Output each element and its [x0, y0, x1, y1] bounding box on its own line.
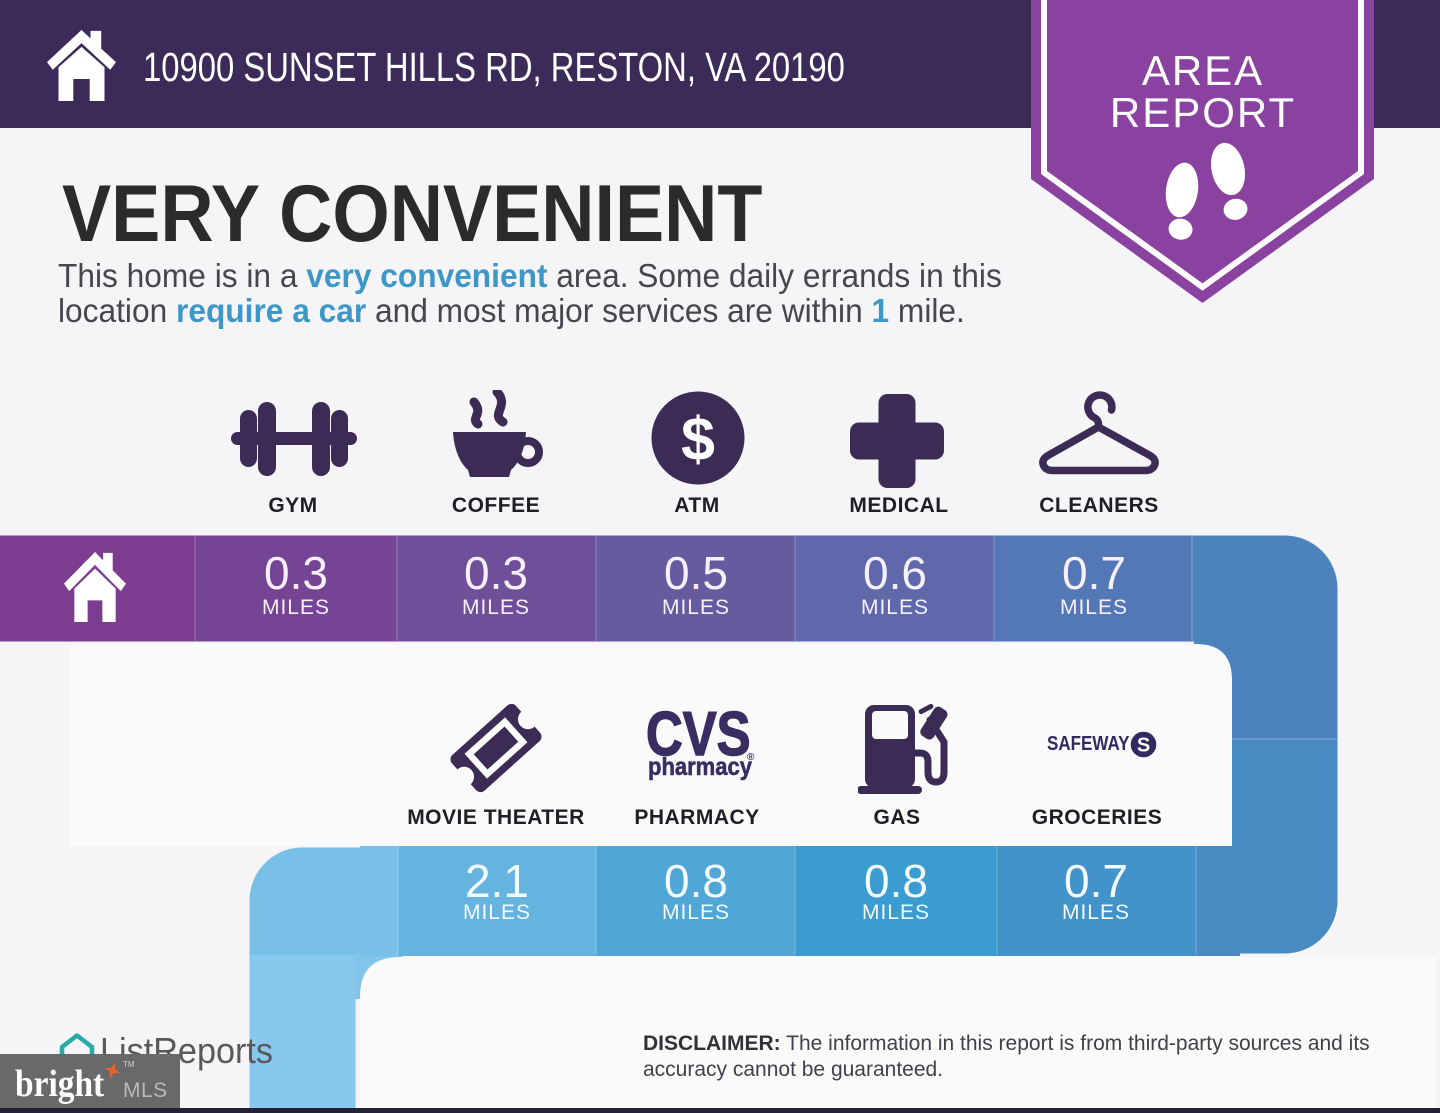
svg-text:AREA: AREA [1142, 47, 1264, 94]
svg-text:S: S [1137, 735, 1150, 757]
svg-text:$: $ [681, 405, 715, 473]
svg-text:REPORT: REPORT [1110, 89, 1296, 136]
